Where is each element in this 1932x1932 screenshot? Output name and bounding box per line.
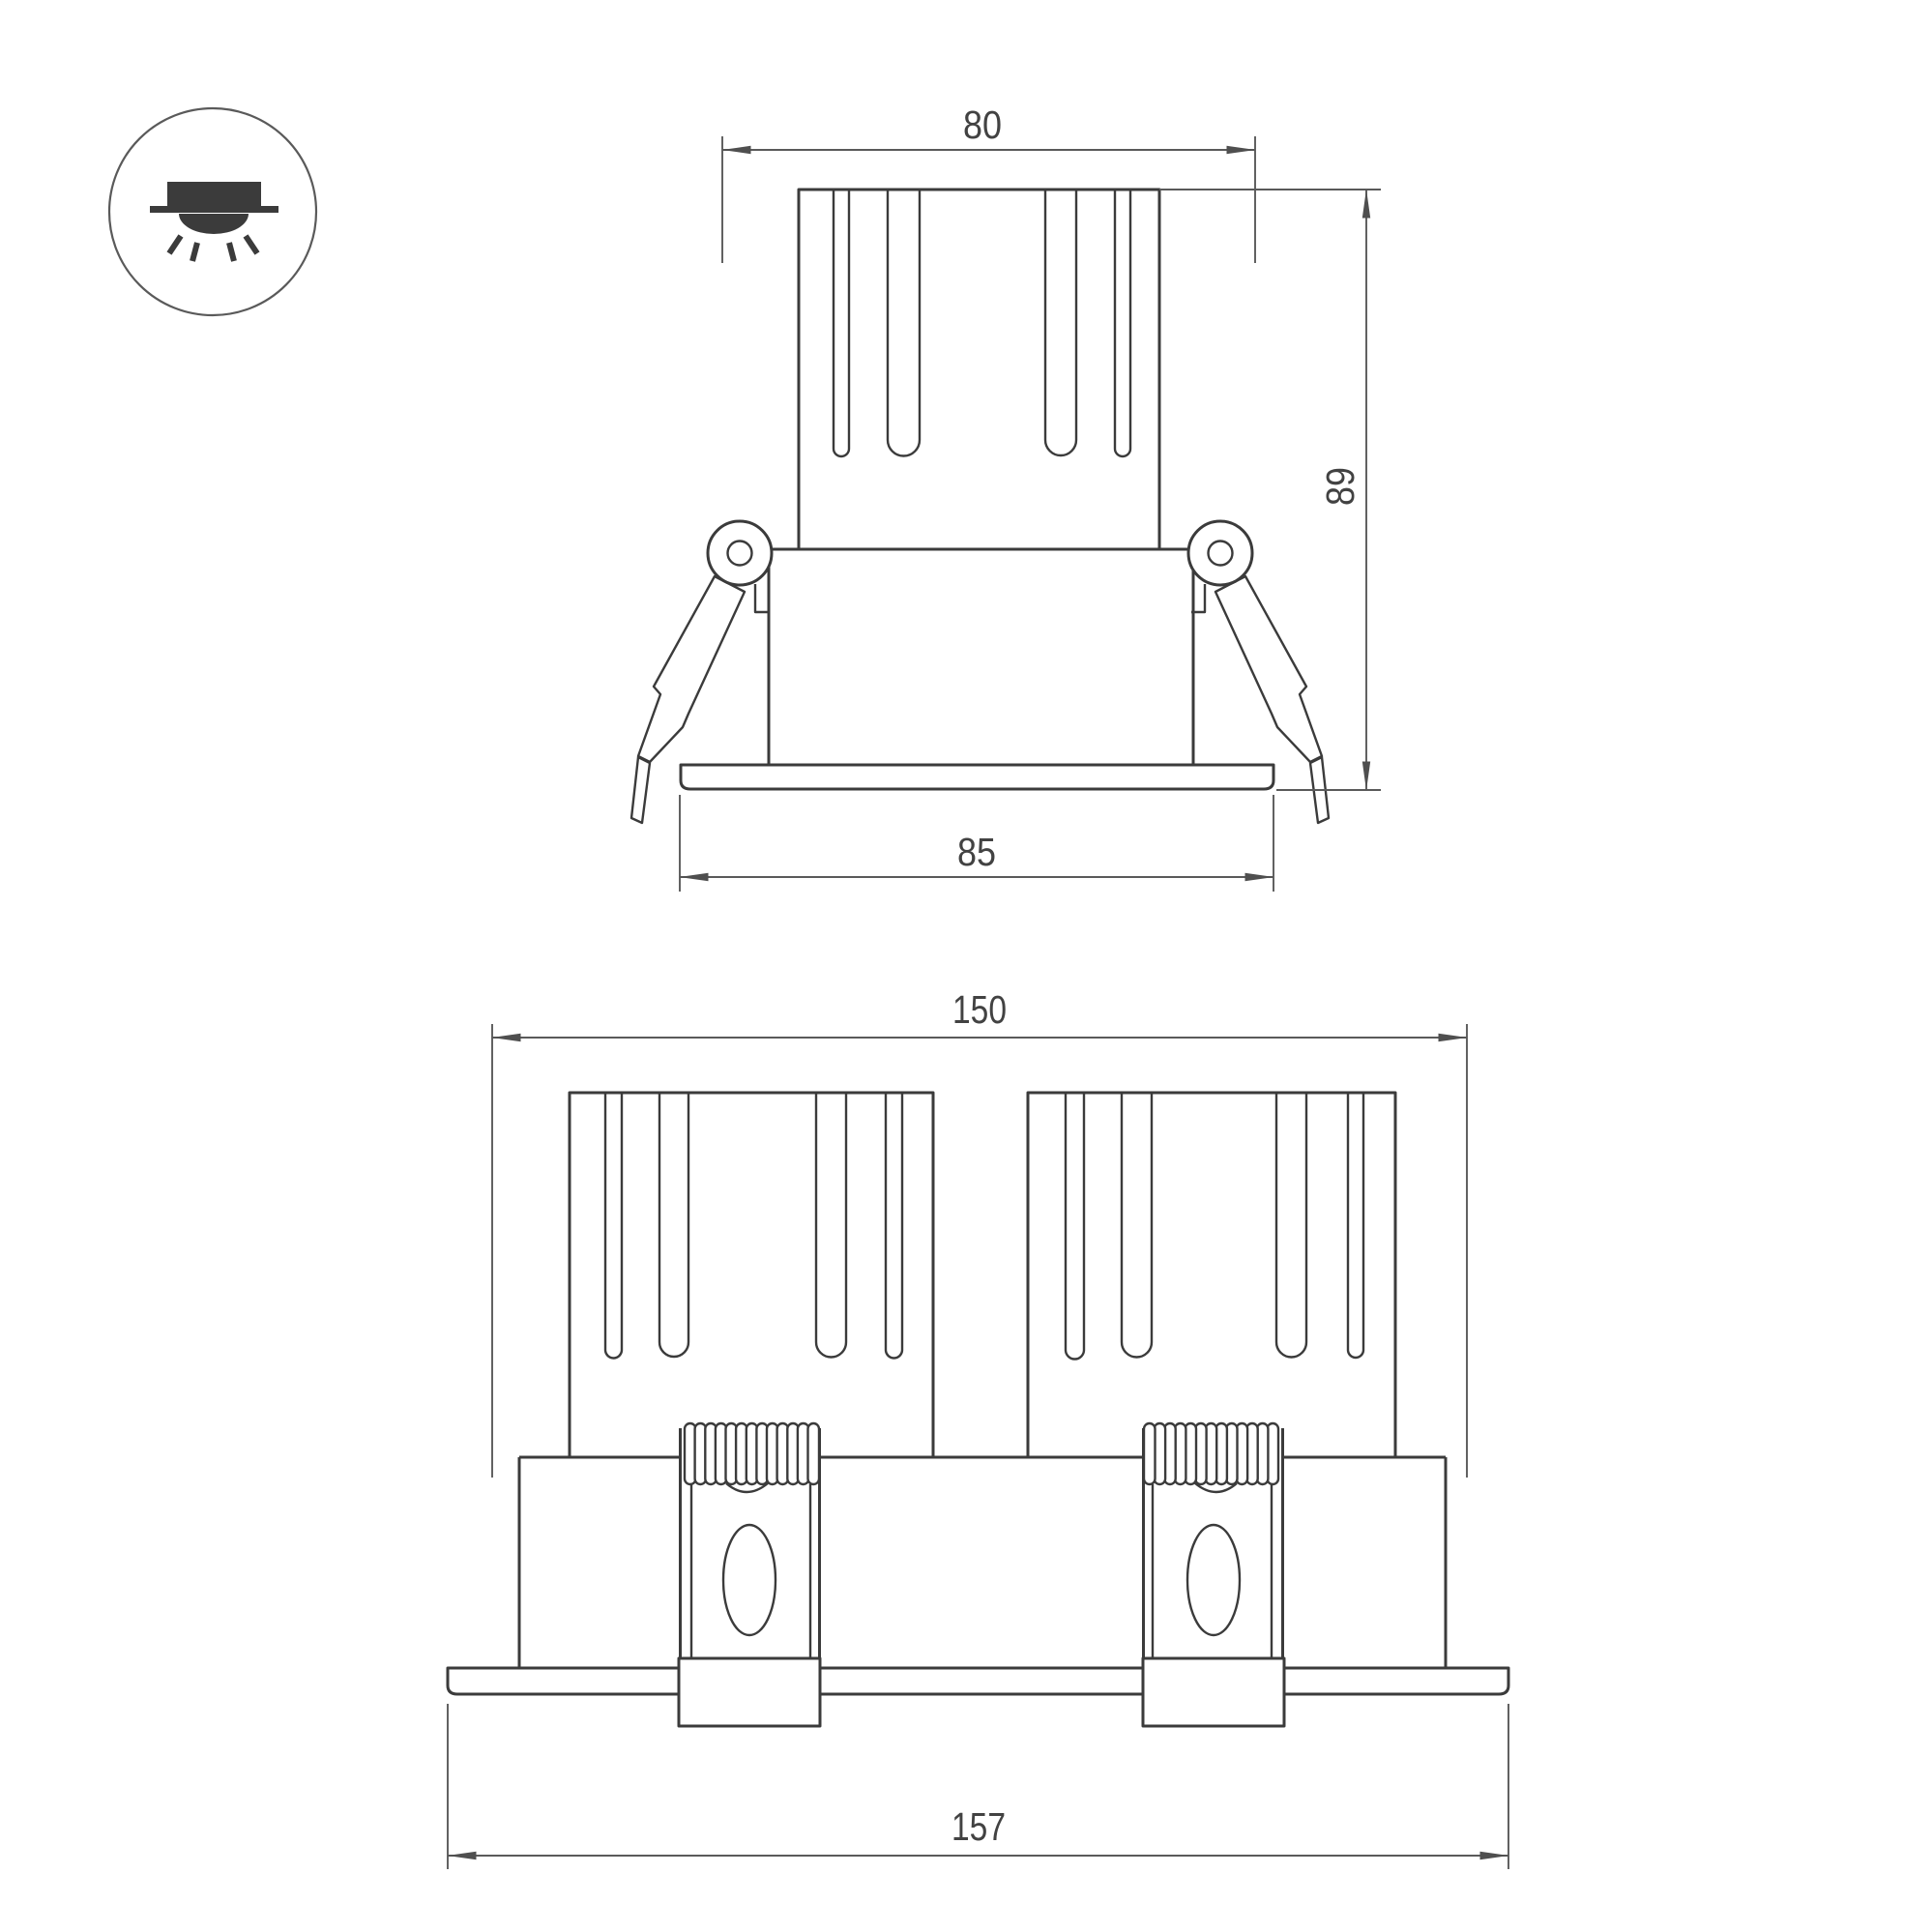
housing-body [519,1457,1446,1668]
double-unit-front-view: 150 157 [448,987,1508,1869]
dimension-flange-width: 157 [448,1704,1508,1869]
bracket-slot [1187,1525,1240,1635]
dim-label-body-width: 150 [952,987,1007,1032]
technical-drawing-page: 80 89 85 [0,0,1932,1932]
coil-spring [1144,1423,1278,1492]
housing-body [769,549,1193,765]
bracket-slot [723,1525,776,1635]
icon-lamp-body [167,182,261,208]
fin-slot [1066,1093,1084,1360]
clip-tab [755,584,769,612]
dimension-flange-width: 85 [680,795,1273,892]
icon-light-rays [169,236,257,261]
fixing-bracket-left [679,1423,820,1726]
single-unit-front-view: 80 89 85 [631,102,1381,892]
fin-slot [659,1093,688,1357]
fin-slot [888,190,920,456]
dim-label-flange-width: 85 [957,830,996,874]
heatsink-outline [570,1093,933,1457]
fin-slot [1045,190,1076,455]
downlight-type-icon [109,108,316,315]
icon-light-dome [179,214,249,234]
clip-leaf-tip [631,757,650,823]
fin-slot [1348,1093,1363,1358]
trim-flange [681,765,1273,789]
fin-slot [1115,190,1130,456]
dim-label-flange-width: 157 [951,1804,1006,1849]
icon-ceiling-flange [150,206,278,213]
fin-slot [1122,1093,1152,1358]
fixing-bracket-right [1143,1423,1284,1726]
clip-pivot-hole [1209,542,1233,566]
dimension-body-width: 150 [492,987,1467,1478]
fin-slot [1276,1093,1306,1358]
fin-slot [834,190,849,456]
heatsink-fins [1066,1093,1363,1360]
fin-slot [816,1093,846,1358]
dim-label-height: 89 [1318,467,1362,506]
clip-arm [1215,576,1322,762]
fin-slot [886,1093,902,1359]
clip-arm [638,576,745,762]
bracket-foot [679,1658,820,1726]
dimension-drawing: 80 89 85 [0,0,1932,1932]
dimension-top-width: 80 [722,102,1255,263]
dim-label-top-width: 80 [963,102,1002,147]
trim-flange [448,1668,1508,1694]
coil-spring [685,1423,819,1492]
clip-pivot-hole [728,542,752,566]
heatsink-fins [605,1093,902,1359]
heatsink-outline [799,190,1159,549]
bracket-foot [1143,1658,1284,1726]
heatsink-fins [834,190,1130,456]
fin-slot [605,1093,622,1359]
